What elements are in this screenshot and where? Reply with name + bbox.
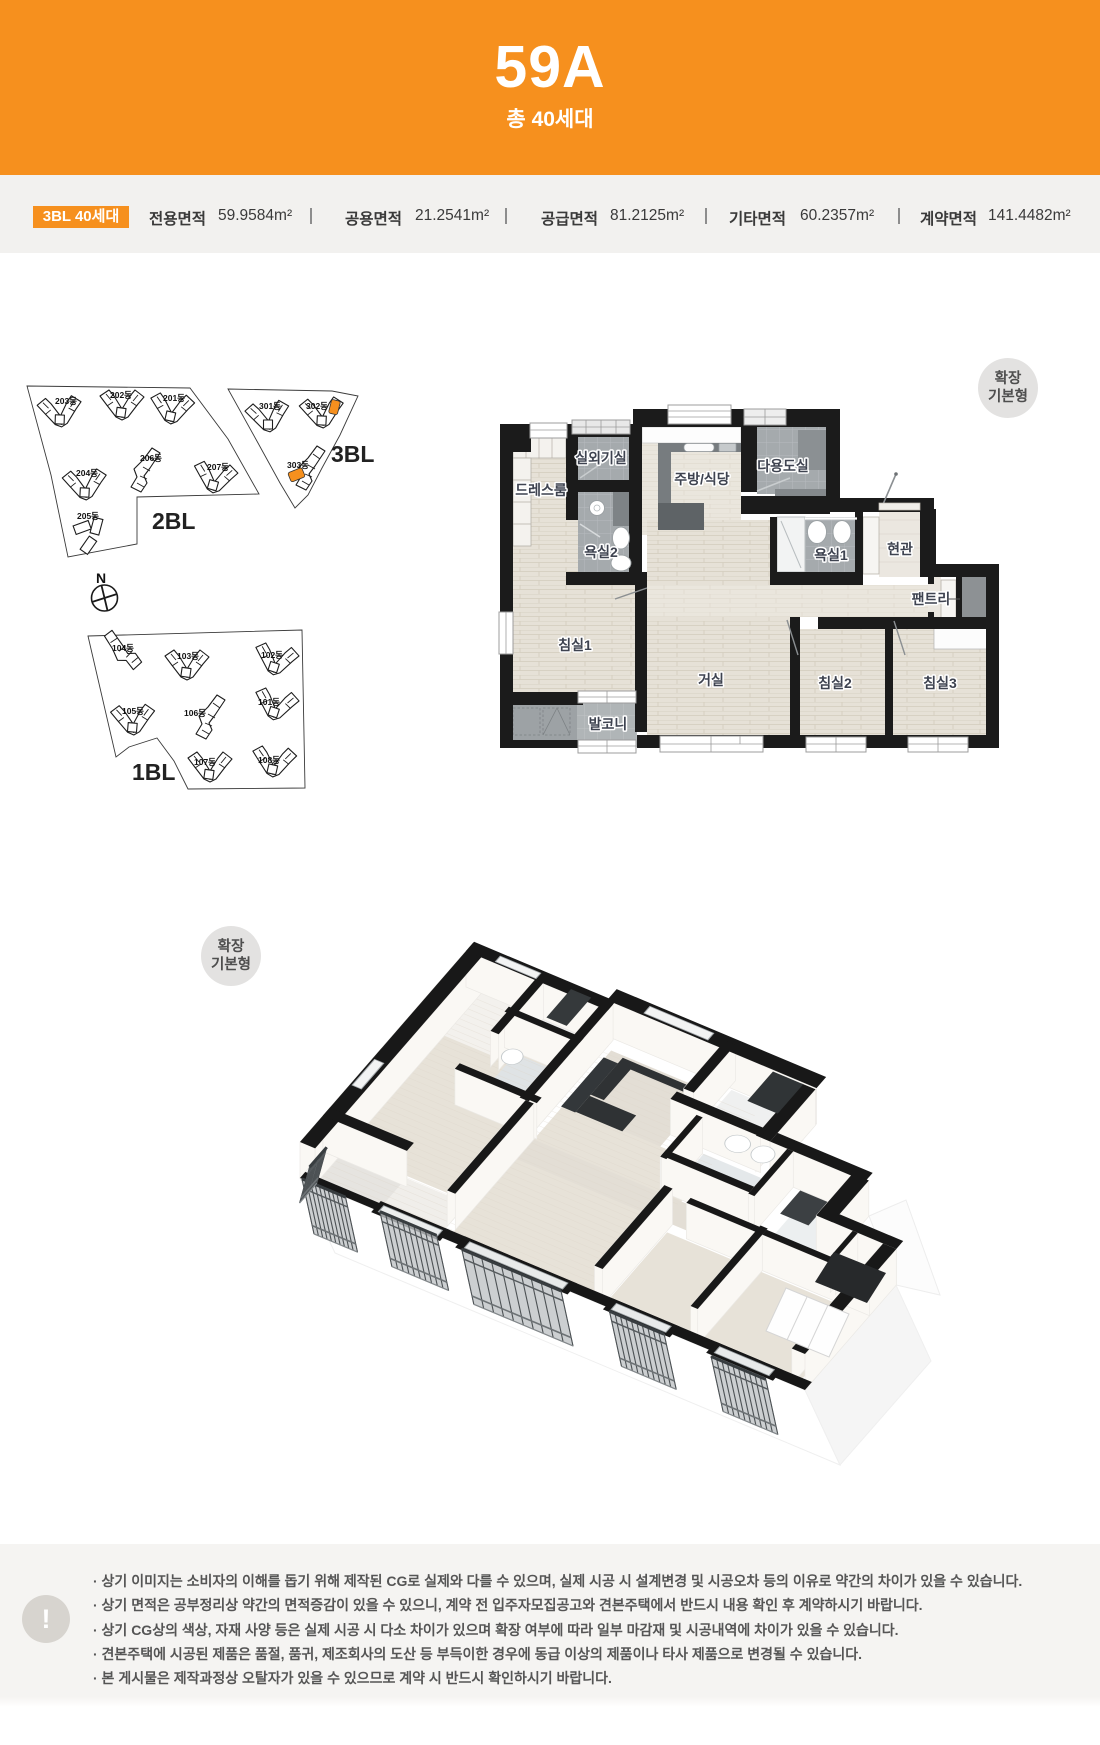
svg-text:실외기실: 실외기실 bbox=[575, 450, 627, 466]
svg-text:욕실2: 욕실2 bbox=[584, 544, 618, 560]
svg-text:팬트리: 팬트리 bbox=[912, 591, 951, 607]
svg-text:107동: 107동 bbox=[194, 757, 216, 767]
svg-text:주방/식당: 주방/식당 bbox=[674, 471, 730, 487]
svg-text:205동: 205동 bbox=[77, 511, 99, 521]
svg-text:발코니: 발코니 bbox=[589, 716, 628, 732]
svg-text:2BL: 2BL bbox=[152, 508, 195, 534]
svg-text:3BL: 3BL bbox=[331, 441, 374, 467]
svg-text:302동: 302동 bbox=[306, 401, 328, 411]
svg-text:201동: 201동 bbox=[163, 393, 185, 403]
svg-text:203동: 203동 bbox=[55, 396, 77, 406]
svg-text:침실2: 침실2 bbox=[818, 675, 852, 691]
svg-text:103동: 103동 bbox=[177, 651, 199, 661]
svg-text:104동: 104동 bbox=[112, 643, 134, 653]
svg-text:202동: 202동 bbox=[110, 390, 132, 400]
svg-text:침실1: 침실1 bbox=[558, 637, 592, 653]
svg-text:침실3: 침실3 bbox=[923, 675, 957, 691]
svg-text:105동: 105동 bbox=[122, 706, 144, 716]
svg-text:거실: 거실 bbox=[698, 672, 724, 688]
svg-text:102동: 102동 bbox=[261, 650, 283, 660]
svg-text:303동: 303동 bbox=[287, 460, 309, 470]
svg-text:드레스룸: 드레스룸 bbox=[515, 482, 567, 498]
svg-text:101동: 101동 bbox=[258, 697, 280, 707]
svg-text:현관: 현관 bbox=[887, 541, 913, 557]
svg-text:1BL: 1BL bbox=[132, 759, 175, 785]
svg-text:301동: 301동 bbox=[259, 401, 281, 411]
svg-text:108동: 108동 bbox=[258, 755, 280, 765]
svg-text:207동: 207동 bbox=[207, 462, 229, 472]
svg-text:106동: 106동 bbox=[184, 708, 206, 718]
svg-text:204동: 204동 bbox=[76, 468, 98, 478]
svg-text:N: N bbox=[96, 570, 106, 586]
svg-text:206동: 206동 bbox=[140, 453, 162, 463]
svg-text:욕실1: 욕실1 bbox=[814, 547, 848, 563]
svg-text:다용도실: 다용도실 bbox=[757, 458, 809, 474]
